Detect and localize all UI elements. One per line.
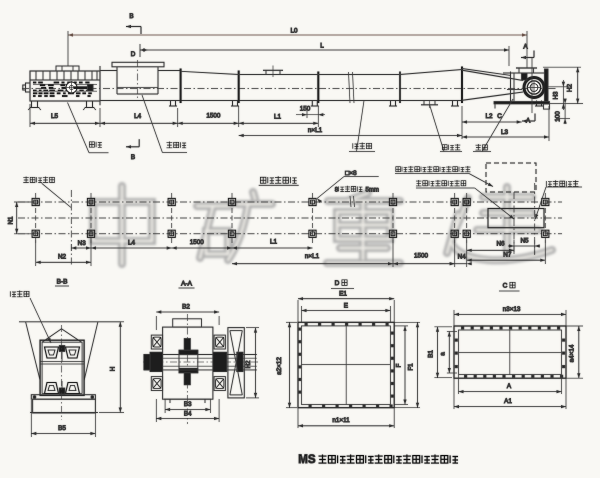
svg-text:L1: L1 <box>274 114 282 121</box>
svg-text:B-B: B-B <box>57 279 68 286</box>
svg-text:a4×14: a4×14 <box>569 344 576 362</box>
svg-text:□×8: □×8 <box>345 170 357 177</box>
svg-text:A-A: A-A <box>181 281 193 288</box>
svg-text:B3: B3 <box>184 401 192 408</box>
svg-text:C: C <box>503 283 508 290</box>
svg-text:N3: N3 <box>78 240 87 247</box>
svg-text:1500: 1500 <box>190 239 205 246</box>
svg-text:a2×12: a2×12 <box>276 357 283 375</box>
svg-text:N7: N7 <box>503 252 512 259</box>
svg-text:N1: N1 <box>8 216 15 225</box>
svg-text:B: B <box>131 154 135 161</box>
svg-text:5mm: 5mm <box>366 188 379 194</box>
svg-text:D: D <box>335 280 340 287</box>
svg-text:L2: L2 <box>485 113 493 120</box>
svg-text:MS: MS <box>298 454 316 466</box>
svg-text:a: a <box>439 352 446 356</box>
svg-text:H2: H2 <box>245 360 252 369</box>
svg-text:L1: L1 <box>270 239 278 246</box>
svg-text:N6: N6 <box>496 240 505 247</box>
svg-text:B5: B5 <box>58 425 66 432</box>
svg-text:L: L <box>320 43 324 50</box>
svg-text:B: B <box>129 13 133 20</box>
svg-text:H3: H3 <box>553 91 560 100</box>
svg-text:n×L1: n×L1 <box>305 253 320 260</box>
svg-text:N2: N2 <box>58 254 67 261</box>
svg-text:1500: 1500 <box>414 253 429 260</box>
svg-text:E1: E1 <box>339 291 347 298</box>
svg-text:L5: L5 <box>51 113 59 120</box>
svg-text:H2: H2 <box>567 83 574 92</box>
svg-text:L0: L0 <box>290 28 298 35</box>
svg-text:N5: N5 <box>520 238 529 245</box>
svg-text:n1×11: n1×11 <box>332 417 350 424</box>
svg-text:n×L1: n×L1 <box>308 127 323 134</box>
svg-text:E: E <box>344 303 348 310</box>
svg-text:B2: B2 <box>182 304 190 311</box>
svg-text:1500: 1500 <box>206 113 221 120</box>
svg-text:F1: F1 <box>408 363 415 371</box>
svg-text:F: F <box>395 363 402 367</box>
svg-text:100: 100 <box>555 111 562 122</box>
svg-text:150: 150 <box>300 106 311 113</box>
svg-text:B4: B4 <box>184 411 192 418</box>
svg-text:A1: A1 <box>504 398 512 405</box>
svg-text:L4: L4 <box>128 240 136 247</box>
svg-text:D: D <box>131 51 136 58</box>
svg-text:L4: L4 <box>134 113 142 120</box>
svg-text:H: H <box>110 366 117 371</box>
svg-text:n3×13: n3×13 <box>503 306 521 313</box>
svg-text:B1: B1 <box>428 350 435 358</box>
svg-text:L3: L3 <box>501 129 509 136</box>
svg-text:N4: N4 <box>458 254 467 261</box>
